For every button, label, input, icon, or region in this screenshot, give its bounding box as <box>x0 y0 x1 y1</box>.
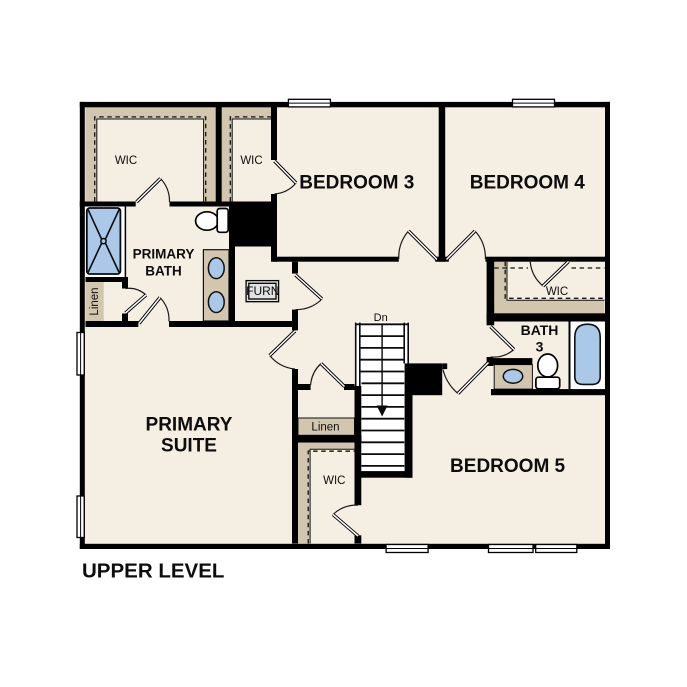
svg-text:BATH: BATH <box>145 263 182 278</box>
svg-text:SUITE: SUITE <box>161 436 217 457</box>
svg-text:WIC: WIC <box>115 155 137 167</box>
svg-text:Linen: Linen <box>89 287 101 315</box>
svg-text:WIC: WIC <box>323 475 345 487</box>
svg-text:FURN: FURN <box>246 284 279 298</box>
svg-text:3: 3 <box>536 339 544 355</box>
svg-text:BEDROOM 3: BEDROOM 3 <box>299 173 414 194</box>
svg-text:PRIMARY: PRIMARY <box>133 246 195 261</box>
svg-text:PRIMARY: PRIMARY <box>146 415 233 436</box>
svg-text:BEDROOM 5: BEDROOM 5 <box>450 456 566 477</box>
svg-text:UPPER LEVEL: UPPER LEVEL <box>82 560 224 583</box>
svg-text:BATH: BATH <box>521 322 559 338</box>
svg-text:WIC: WIC <box>240 155 262 167</box>
svg-text:Dn: Dn <box>374 312 388 324</box>
svg-text:BEDROOM 4: BEDROOM 4 <box>470 173 586 194</box>
svg-text:Linen: Linen <box>311 422 339 434</box>
svg-text:WIC: WIC <box>546 286 568 298</box>
